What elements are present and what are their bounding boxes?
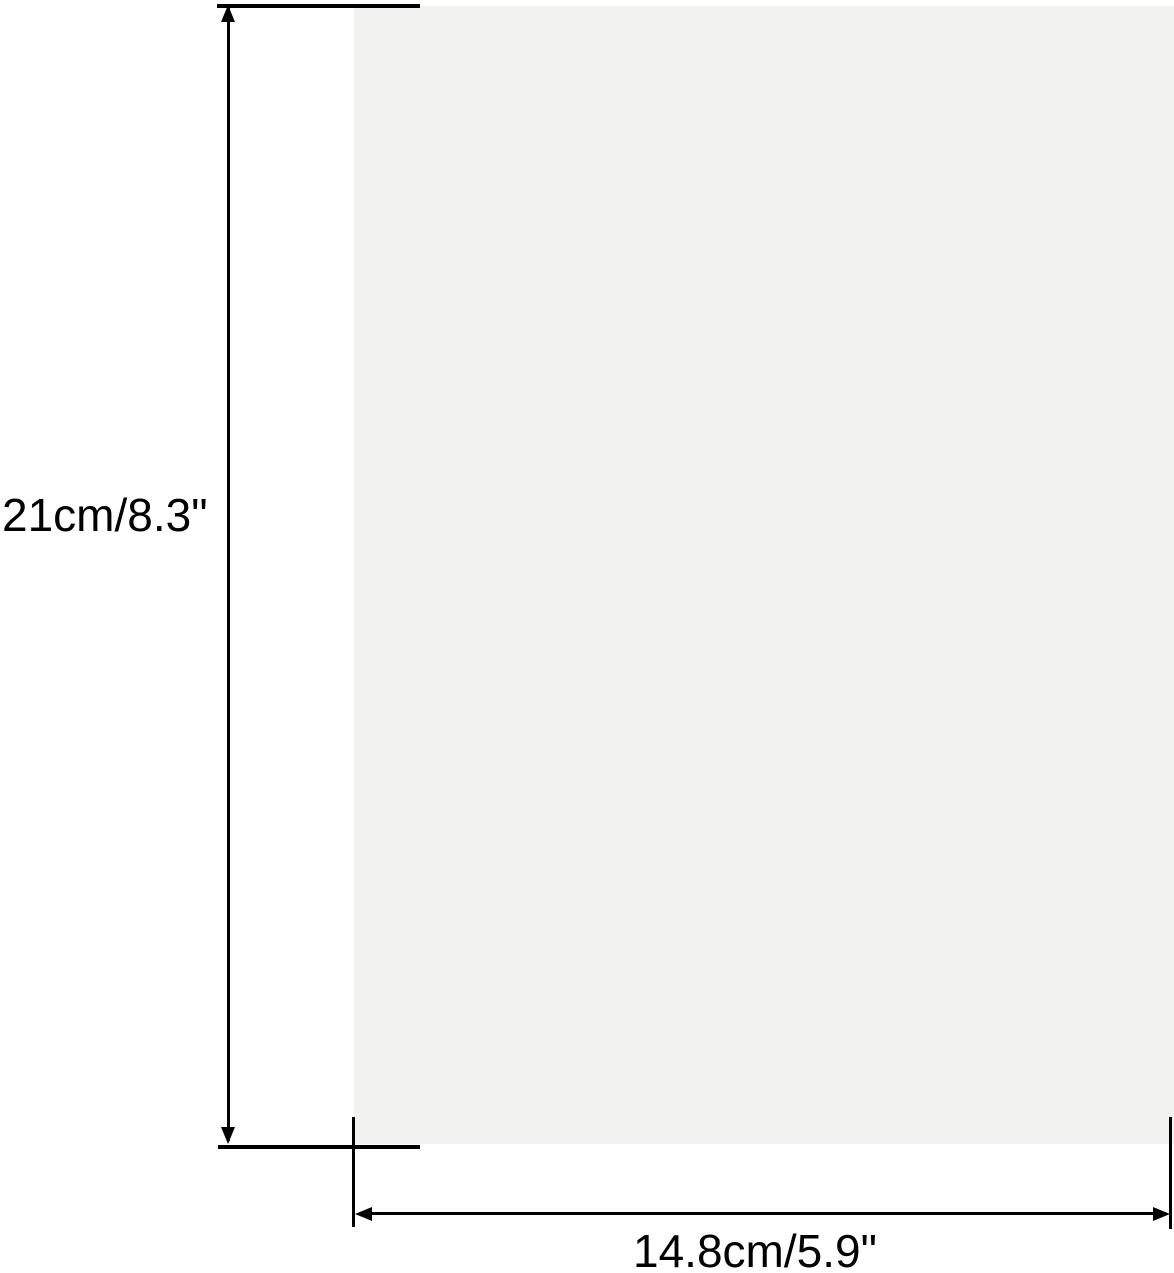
arrow-left-icon: [355, 1207, 372, 1221]
height-extension-line-top: [217, 4, 420, 8]
height-dimension-line: [227, 8, 230, 1141]
arrow-down-icon: [221, 1127, 235, 1144]
width-dimension-line: [360, 1212, 1166, 1215]
height-extension-line-bottom: [218, 1145, 420, 1149]
arrow-up-icon: [221, 5, 235, 22]
paper-sheet: [354, 6, 1174, 1144]
width-dimension-label: 14.8cm/5.9": [633, 1228, 877, 1273]
height-dimension-label: 21cm/8.3": [2, 492, 208, 538]
arrow-right-icon: [1153, 1207, 1170, 1221]
dimension-diagram: 21cm/8.3" 14.8cm/5.9": [0, 0, 1174, 1273]
